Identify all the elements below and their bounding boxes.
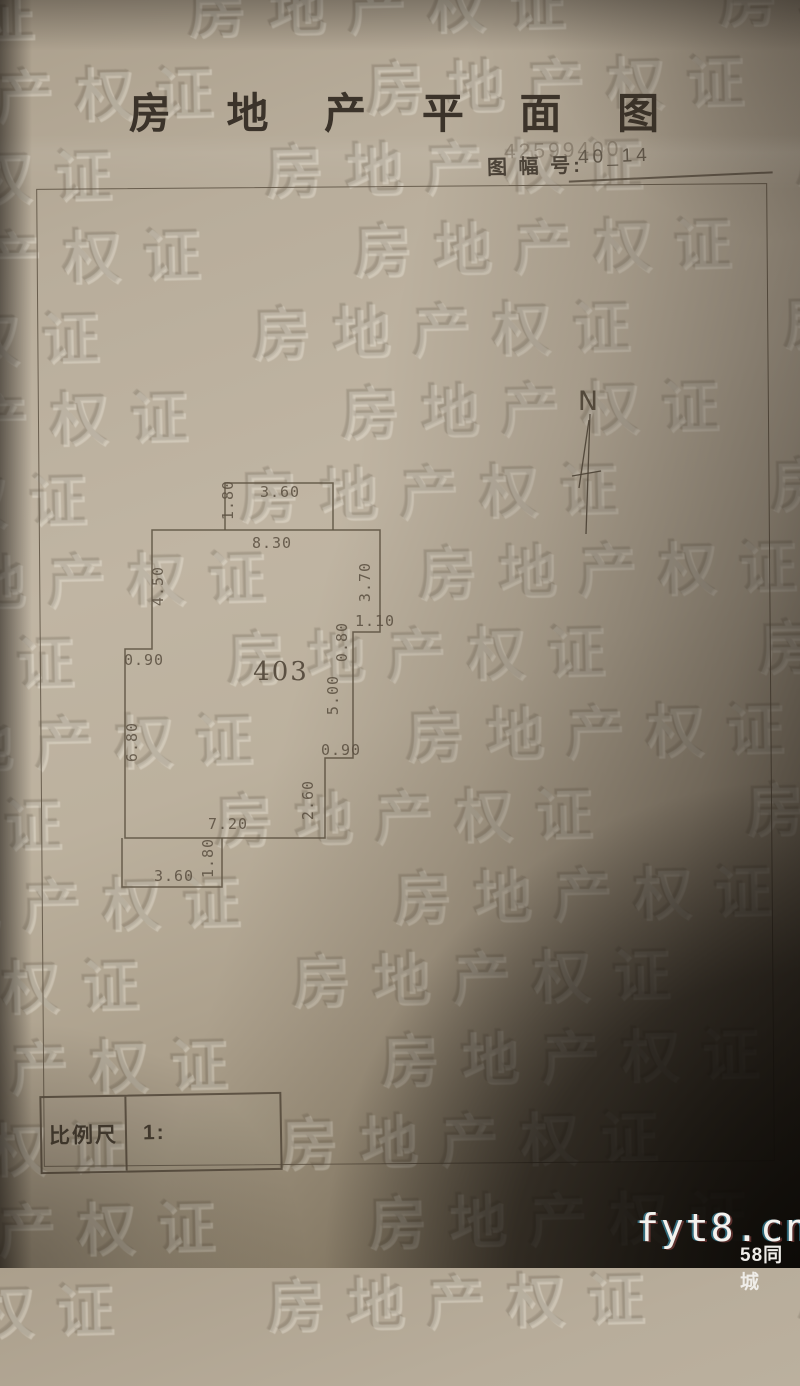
plan-border-frame bbox=[36, 183, 775, 1167]
scale-label: 比例尺 bbox=[41, 1097, 127, 1172]
brand-watermark: 58同城 bbox=[740, 1240, 800, 1294]
scale-value: 1: bbox=[126, 1094, 280, 1171]
page-title: 房 地 产 平 面 图 bbox=[0, 80, 800, 141]
scale-box: 比例尺 1: bbox=[39, 1092, 282, 1174]
